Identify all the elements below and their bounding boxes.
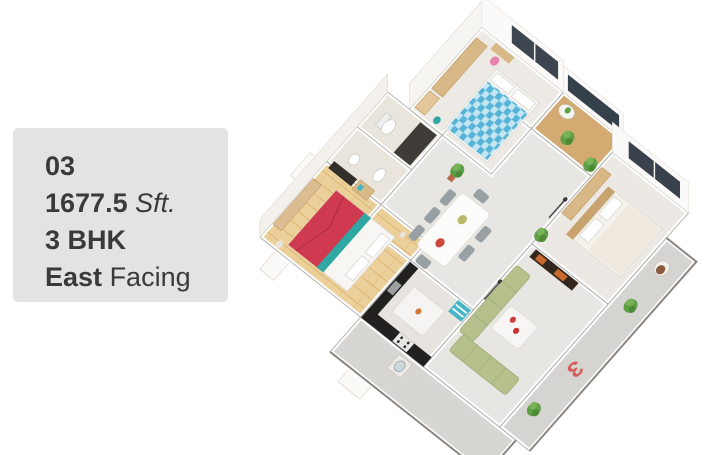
unit-bhk: 3 BHK	[45, 222, 218, 259]
unit-facing: East Facing	[45, 259, 218, 296]
floor-plan-isometric-group: 3	[203, 0, 710, 455]
screenshot-stage: 3 03	[0, 0, 710, 455]
unit-number: 03	[45, 148, 218, 185]
unit-area: 1677.5 Sft.	[45, 185, 218, 222]
unit-info-card: 03 1677.5 Sft. 3 BHK East Facing	[13, 128, 228, 302]
